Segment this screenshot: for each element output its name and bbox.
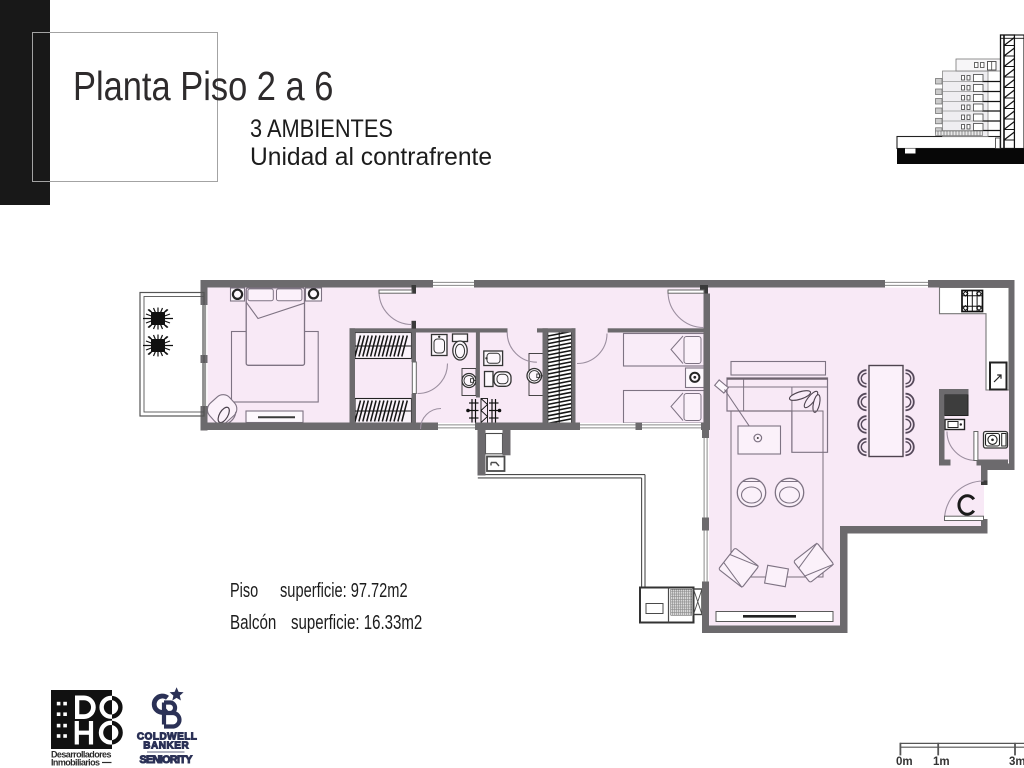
svg-text:SENIORITY: SENIORITY — [140, 754, 194, 766]
svg-text:BANKER: BANKER — [143, 740, 189, 751]
svg-text:3m: 3m — [1009, 756, 1024, 768]
svg-text:0m: 0m — [896, 756, 913, 768]
svg-text:1m: 1m — [933, 756, 950, 768]
svg-text:Inmobiliarios: Inmobiliarios — [51, 758, 100, 768]
